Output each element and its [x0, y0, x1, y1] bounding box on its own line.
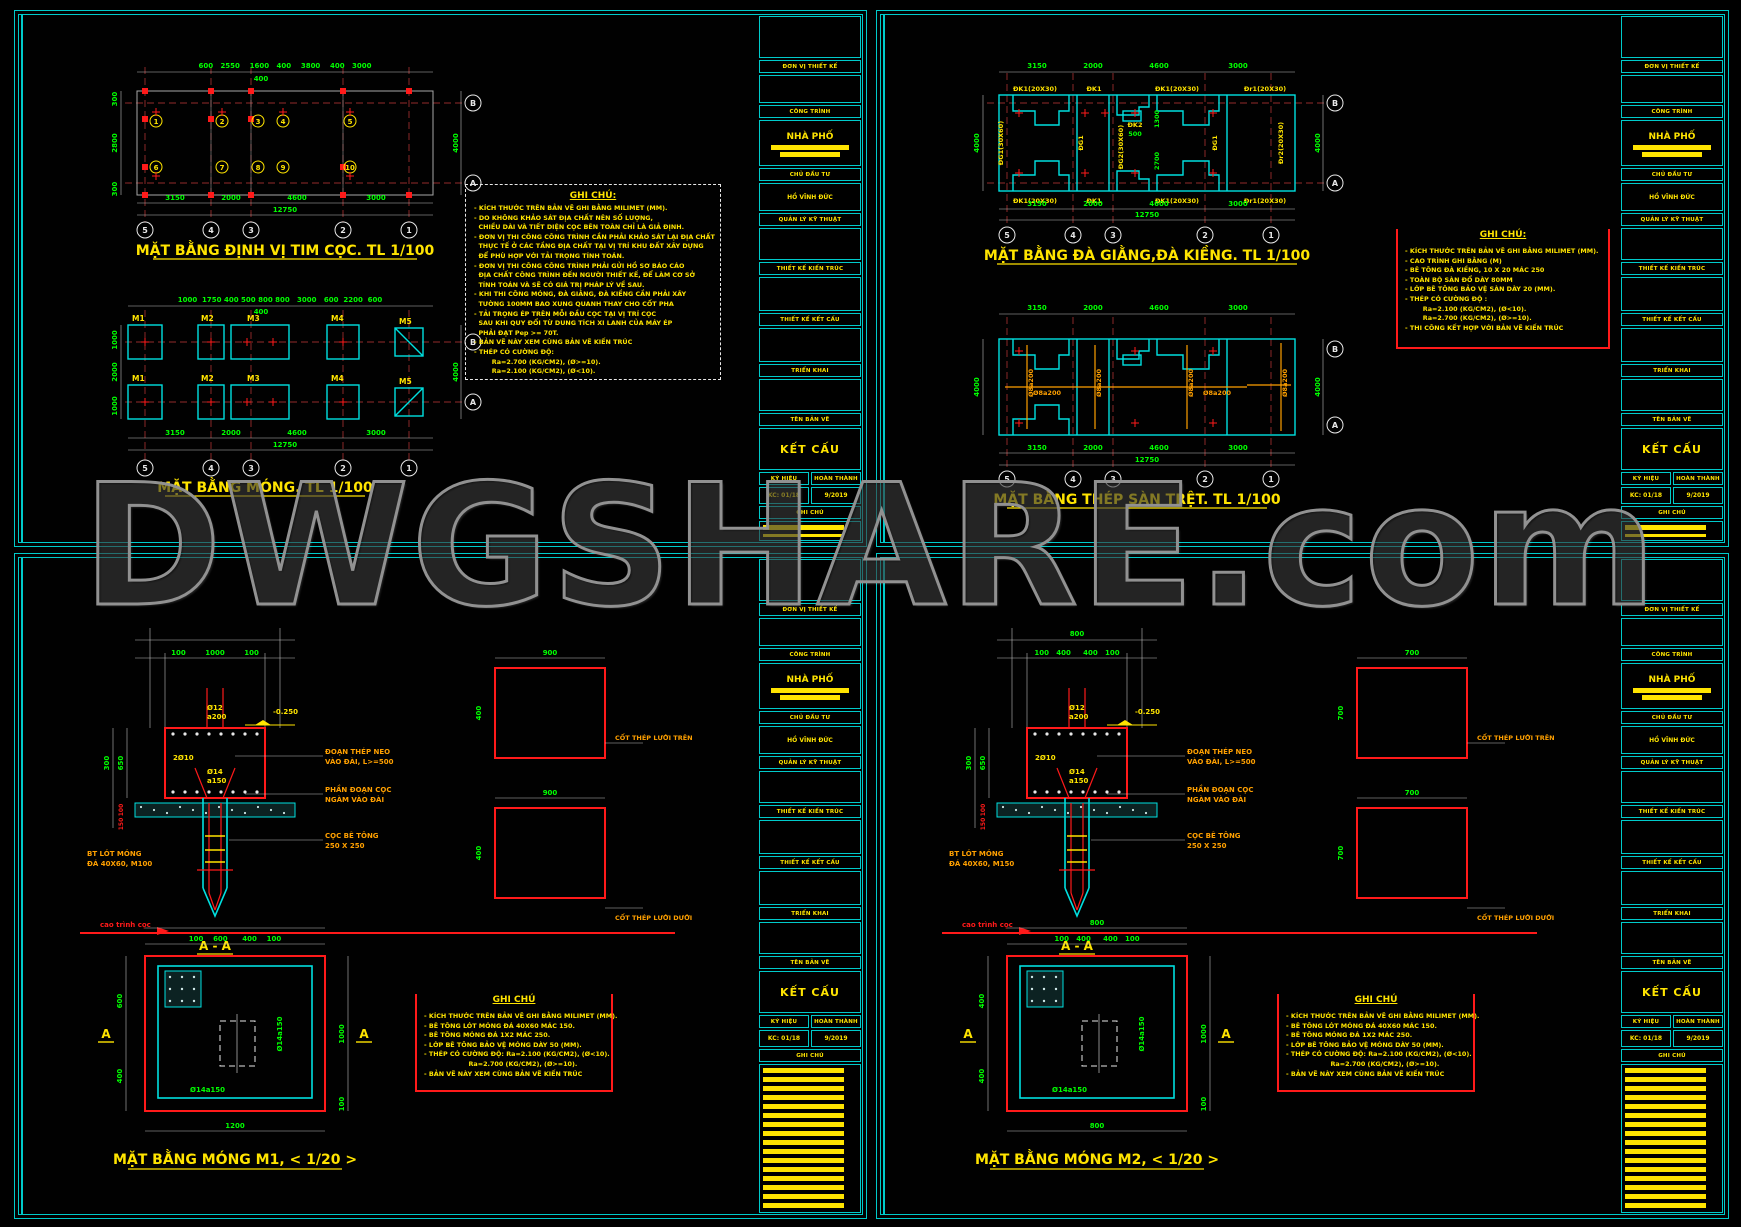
drawing-text: 7	[220, 164, 225, 172]
drawing-shape	[1067, 812, 1069, 814]
drawing-shape	[169, 988, 171, 990]
note-line: THỰC TẾ Ở CÁC TẦNG ĐỊA CHẤT TẠI VỊ TRÍ K…	[474, 242, 712, 252]
note-line: ĐỂ PHÙ HỢP VỚI TẢI TRỌNG TÍNH TOÁN.	[474, 252, 712, 262]
drawing-text: 3150	[1027, 304, 1047, 312]
titleblock-row-header: TRIỂN KHAI	[1621, 907, 1723, 920]
drawing-shape	[248, 192, 254, 198]
drawing-shape	[1117, 732, 1120, 735]
drawing-shape: 31502000 46003000 31502000 46003000 1275…	[973, 304, 1322, 464]
titleblock-row-value	[1621, 379, 1723, 411]
titleblock-row-value: HỒ VĨNH ĐỨC	[1621, 726, 1723, 754]
drawing-shape	[1055, 1000, 1057, 1002]
titleblock-row-header: THIẾT KẾ KIẾN TRÚC	[1621, 262, 1723, 275]
sheet-pile-foundation-plans[interactable]: 12 34 5 67 89 10	[14, 10, 867, 547]
titleblock-note-header: GHI CHÚ	[1621, 506, 1723, 519]
titleblock-row-value: HỒ VĨNH ĐỨC	[1621, 183, 1723, 211]
drawing-text: 100	[118, 804, 125, 817]
title-block: ĐƠN VỊ THIẾT KẾCÔNG TRÌNHNHÀ PHỐCHỦ ĐẦU …	[758, 15, 862, 542]
note-line: - KÍCH THƯỚC TRÊN BẢN VẼ GHI BẰNG MILIME…	[424, 1012, 604, 1022]
drawing-shape	[1093, 790, 1096, 793]
titleblock-designer-box	[759, 75, 861, 103]
drawing-shape	[1027, 728, 1127, 798]
drawing-shape	[1069, 732, 1072, 735]
drawing-text: B	[470, 99, 476, 108]
drawing-shape	[203, 888, 227, 916]
drawing-shape: A A	[963, 1027, 1231, 1041]
titleblock-row-value	[759, 771, 861, 803]
note-line: CHIỀU DÀI VÀ TIẾT DIỆN CỌC BÊN TOÀN CHỈ …	[474, 223, 712, 233]
drawing-text: 4000	[1314, 377, 1322, 397]
drawing-text: Ø14a150	[190, 1086, 225, 1094]
drawing-text: 700	[1337, 706, 1345, 721]
drawing-shape	[1013, 95, 1069, 125]
drawing-shape	[1033, 790, 1036, 793]
titleblock-designer-header: ĐƠN VỊ THIẾT KẾ	[1621, 603, 1723, 616]
drawing-text: a200	[207, 713, 226, 721]
sheet-edge-band	[883, 557, 885, 1215]
titleblock-sign-label: KÝ HIỆU	[759, 472, 809, 485]
beam-plan-title: MẶT BẰNG ĐÀ GIẰNG,ĐÀ KIỀNG. TL 1/100	[984, 245, 1310, 264]
drawing-shape: 100 150	[118, 804, 125, 831]
titleblock-row-value: NHÀ PHỐ	[759, 120, 861, 166]
drawing-text: ĐG2(30X60)	[1117, 125, 1125, 169]
drawing-shape	[231, 790, 234, 793]
titleblock-row-header: CHỦ ĐẦU TƯ	[1621, 168, 1723, 181]
drawing-shape	[183, 732, 186, 735]
drawing-text: 150	[118, 818, 125, 831]
drawing-text: 4000	[973, 377, 981, 397]
drawing-text: 400	[978, 1069, 986, 1084]
titleblock-row-header: CÔNG TRÌNH	[1621, 105, 1723, 118]
drawing-text: 3	[1110, 475, 1116, 484]
titleblock-logo-box	[759, 559, 861, 601]
titleblock-row-value	[1621, 922, 1723, 954]
titleblock-row-value	[1621, 771, 1723, 803]
notes-title: GHI CHÚ	[424, 995, 604, 1005]
titleblock-row-value: HỒ VĨNH ĐỨC	[759, 726, 861, 754]
drawing-text: Ø8a200	[1203, 389, 1231, 397]
drawing-text: ĐOẠN THÉP NEO	[1187, 747, 1252, 756]
drawing-text: 100	[980, 804, 987, 817]
drawing-shape: Ø12 a200 -0.250 2Ø10 Ø14 a150	[1035, 704, 1160, 785]
notes-title: GHI CHÚ:	[1405, 230, 1601, 240]
drawing-text: 2000	[1083, 200, 1103, 208]
drawing-text: PHẦN ĐOẠN CỌC	[1187, 784, 1253, 794]
drawing-text: 2Ø10	[173, 754, 194, 762]
drawing-text: -0.250	[1135, 708, 1160, 716]
drawing-shape	[1080, 806, 1082, 808]
drawing-shape: 54 32 1 BA	[142, 338, 477, 473]
drawing-shape: 500 1300 2700	[1128, 109, 1161, 170]
drawing-shape	[495, 668, 605, 758]
titleblock-designer-header: ĐƠN VỊ THIẾT KẾ	[1621, 60, 1723, 73]
note-line: - THÉP CÓ CƯỜNG ĐỘ: Ra=2.100 (KG/CM2), (…	[424, 1050, 604, 1060]
drawing-shape: Ø12 a200 -0.250 2Ø10 Ø14 a150	[173, 704, 298, 785]
drawing-shape	[340, 192, 346, 198]
note-line: - DO KHÔNG KHẢO SÁT ĐỊA CHẤT NÊN SỐ LƯỢN…	[474, 214, 712, 224]
drawing-text: ĐK1	[1086, 85, 1101, 93]
note-line: - BÊ TÔNG MÓNG ĐÁ 1X2 MÁC 250.	[1286, 1031, 1466, 1041]
drawing-shape	[257, 806, 259, 808]
drawing-text: 100 400 400 100	[1054, 935, 1139, 943]
drawing-shape	[195, 732, 198, 735]
drawing-shape	[243, 790, 246, 793]
drawing-text: VÀO ĐÀI, L>=500	[1187, 757, 1256, 766]
drawing-text: 300	[111, 92, 119, 107]
drawing-shape	[193, 976, 195, 978]
drawing-shape	[1117, 720, 1133, 725]
redacted-text	[780, 695, 840, 700]
mesh-details: 900 400 CỐT THÉP LƯỚI TRÊN 900 400 CỐT T…	[475, 649, 693, 922]
drawing-shape	[999, 95, 1295, 191]
drawing-text: 3000	[1228, 200, 1248, 208]
titleblock-row-header: THIẾT KẾ KIẾN TRÚC	[759, 262, 861, 275]
drawing-shape	[1057, 732, 1060, 735]
drawing-text: 400	[475, 706, 483, 721]
drawing-shape	[999, 95, 1295, 191]
drawing-text: CỐT THÉP LƯỚI TRÊN	[615, 732, 693, 742]
drawing-shape	[137, 95, 481, 238]
titleblock-sign-label: KÝ HIỆU	[759, 1015, 809, 1028]
redacted-note-text	[763, 1068, 844, 1209]
drawing-text: PHẦN ĐOẠN CỌC	[325, 784, 391, 794]
drawing-shape	[142, 116, 148, 122]
titleblock-row-header: TÊN BẢN VẼ	[759, 956, 861, 969]
titleblock-row-header: TÊN BẢN VẼ	[1621, 956, 1723, 969]
drawing-text: 500	[1128, 130, 1142, 138]
drawing-text: A	[1221, 1027, 1231, 1041]
drawing-text: A	[963, 1027, 973, 1041]
sheet-footing-m2-details[interactable]: 800 100 400 400 100 Ø12 a200 -0.250 2Ø10…	[876, 553, 1729, 1219]
titleblock-value-text: HỒ VĨNH ĐỨC	[1649, 194, 1695, 201]
drawing-text: 1000 1750 400 500 800 800 3000 600 2200 …	[178, 296, 383, 304]
drawing-text: 1000	[338, 1024, 346, 1044]
drawing-shape	[270, 809, 272, 811]
note-line: - CAO TRÌNH GHI BẰNG (M)	[1405, 257, 1601, 267]
drawing-shape	[1117, 790, 1120, 793]
drawing-text: 4	[208, 226, 214, 235]
drawing-shape	[208, 192, 214, 198]
drawing-text: Ø8a200	[1187, 369, 1195, 397]
drawing-text: 2	[1202, 231, 1208, 240]
drawing-text: M4	[331, 314, 344, 323]
drawing-text: CỌC BÊ TÔNG	[325, 831, 379, 840]
drawing-text: 6	[154, 164, 159, 172]
drawing-text: 2000	[221, 429, 241, 437]
drawing-text: 3150	[165, 194, 185, 202]
titleblock-row-value: KẾT CẤU	[1621, 971, 1723, 1013]
drawing-shape: 100 150	[980, 804, 987, 831]
drawing-text: CỐT THÉP LƯỚI DƯỚI	[1477, 912, 1554, 922]
drawing-shape	[1054, 809, 1056, 811]
titleblock-row-value	[759, 277, 861, 311]
drawing-text: Ø14a150	[276, 1016, 284, 1051]
drawing-shape	[193, 988, 195, 990]
drawing-text: 4	[208, 464, 214, 473]
drawing-text: 4	[281, 118, 286, 126]
drawing-shape	[205, 836, 225, 862]
drawing-shape	[1041, 806, 1043, 808]
drawing-text: Đr1(20X30)	[1244, 197, 1286, 205]
drawing-text: 10	[345, 164, 355, 172]
drawing-text: 8	[256, 164, 261, 172]
drawing-shape	[181, 988, 183, 990]
titleblock-row-header: TRIỂN KHAI	[759, 907, 861, 920]
drawing-text: 400	[475, 846, 483, 861]
drawing-text: 700	[1405, 789, 1420, 797]
drawing-shape	[1132, 809, 1134, 811]
drawing-shape	[340, 88, 346, 94]
drawing-shape	[1105, 790, 1108, 793]
titleblock-designer-box	[759, 618, 861, 646]
note-line: SAU KHI QUY ĐỔI TỪ DUNG TÍCH XI LANH CỦA…	[474, 319, 712, 329]
titleblock-designer-box	[1621, 618, 1723, 646]
titleblock-row-value: HỒ VĨNH ĐỨC	[759, 183, 861, 211]
drawing-shape	[1157, 339, 1219, 369]
drawing-text: 4600	[1149, 304, 1169, 312]
titleblock-row-header: CHỦ ĐẦU TƯ	[759, 168, 861, 181]
notes-title: GHI CHÚ	[1286, 995, 1466, 1005]
titleblock-row-header: CHỦ ĐẦU TƯ	[759, 711, 861, 724]
titleblock-sign-value: KC: 01/18	[1621, 1030, 1671, 1047]
titleblock-row-value	[759, 228, 861, 260]
drawing-shape	[495, 808, 605, 898]
titleblock-note-box	[759, 1064, 861, 1213]
pile-cap-section: 800 100 400 400 100 Ø12 a200 -0.250 2Ø10…	[942, 628, 1537, 954]
drawing-text: 800	[1090, 919, 1105, 927]
drawing-text: A	[1332, 421, 1339, 430]
drawing-text: 300	[111, 182, 119, 197]
redacted-text	[771, 688, 849, 693]
titleblock-logo-box	[1621, 559, 1723, 601]
drawing-text: 4	[1070, 231, 1076, 240]
drawing-text: 1	[406, 226, 412, 235]
drawing-shape	[211, 91, 343, 195]
drawing-text: 2	[340, 464, 346, 473]
drawing-shape: 300 650	[103, 756, 125, 771]
drawing-shape	[1015, 809, 1017, 811]
drawing-text: 1	[1268, 475, 1274, 484]
titleblock-logo-box	[1621, 16, 1723, 58]
drawing-shape	[137, 91, 433, 195]
drawing-text: 5	[142, 464, 148, 473]
drawing-text: 700	[1337, 846, 1345, 861]
drawing-text: Ø14a150	[1052, 1086, 1087, 1094]
drawing-text: M2	[201, 314, 214, 323]
drawing-text: a150	[207, 777, 226, 785]
note-line: - THÉP CÓ CƯỜNG ĐỘ:	[474, 348, 712, 358]
drawing-text: 700	[1405, 649, 1420, 657]
titleblock-sign-value: KC: 01/18	[1621, 487, 1671, 504]
drawing-shape	[169, 976, 171, 978]
note-line: - BÊ TÔNG LÓT MÓNG ĐÁ 40X60 MÁC 150.	[424, 1022, 604, 1032]
note-line: - BẢN VẼ NÀY XEM CÙNG BẢN VẼ KIẾN TRÚC	[424, 1070, 604, 1080]
drawing-text: 4000	[1314, 133, 1322, 153]
drawing-text: 5	[142, 226, 148, 235]
drawing-text: 2000	[1083, 304, 1103, 312]
titleblock-value-text: KẾT CẤU	[1642, 443, 1702, 456]
drawing-text: -0.250	[273, 708, 298, 716]
drawing-text: 3150	[1027, 200, 1047, 208]
note-line: TƯỜNG 100MM BAO XUNG QUANH THAY CHO CỐT …	[474, 300, 712, 310]
drawing-shape	[183, 790, 186, 793]
drawing-shape	[1067, 836, 1087, 862]
redacted-note-text	[763, 525, 844, 537]
drawing-text: CỌC BÊ TÔNG	[1187, 831, 1241, 840]
drawing-shape	[140, 806, 142, 808]
drawing-text: A	[359, 1027, 369, 1041]
drawing-shape	[1069, 790, 1072, 793]
drawing-text: 300	[965, 756, 973, 771]
titleblock-value-text: KẾT CẤU	[1642, 986, 1702, 999]
titleblock-value-text: HỒ VĨNH ĐỨC	[787, 737, 833, 744]
titleblock-row-value: NHÀ PHỐ	[759, 663, 861, 709]
titleblock-sign-value: KC: 01/18	[759, 487, 809, 504]
note-line: - BÊ TÔNG MÓNG ĐÁ 1X2 MÁC 250.	[424, 1031, 604, 1041]
drawing-text: M1	[132, 314, 145, 323]
drawing-text: 400	[116, 1069, 124, 1084]
drawing-text: 2	[340, 226, 346, 235]
redacted-note-text	[1625, 525, 1706, 537]
drawing-text: cao trình cọc	[962, 921, 1013, 929]
drawing-canvas-q3[interactable]: 100 1000 100 Ø12 a200 -0.250 2Ø10 Ø14 a1…	[25, 558, 755, 1210]
drawing-text: Ø14	[207, 768, 223, 776]
note-line: - BẢN VẼ NÀY XEM CÙNG BẢN VẼ KIẾN TRÚC	[474, 338, 712, 348]
drawing-text: 2000	[221, 194, 241, 202]
drawing-text: a150	[1069, 777, 1088, 785]
drawing-text: ĐK1(20X30)	[1155, 85, 1199, 93]
drawing-text: CỐT THÉP LƯỚI TRÊN	[1477, 732, 1555, 742]
note-line: - THÉP CÓ CƯỜNG ĐỘ: Ra=2.100 (KG/CM2), (…	[1286, 1050, 1466, 1060]
titleblock-row-header: TRIỂN KHAI	[759, 364, 861, 377]
drawing-shape	[231, 809, 233, 811]
drawing-shape	[255, 790, 258, 793]
drawing-shape	[142, 192, 148, 198]
drawing-text: 4600	[287, 429, 307, 437]
note-line: Ra=2.700 (KG/CM2), (Ø>=10).	[474, 358, 712, 368]
drawing-shape	[207, 790, 210, 793]
titleblock-designer-header: ĐƠN VỊ THIẾT KẾ	[759, 60, 861, 73]
drawing-text: NGÀM VÀO ĐÀI	[325, 795, 384, 804]
drawing-text: ĐÁ 40X60, M100	[87, 859, 152, 868]
drawing-shape	[208, 88, 214, 94]
drawing-text: 4600	[287, 194, 307, 202]
sheet-beam-slab-plans[interactable]: ĐK1(20X30) ĐK1 ĐK1(20X30) Đr1(20X30) ĐK1…	[876, 10, 1729, 547]
drawing-text: 400	[254, 308, 269, 316]
footing-plan-title: MẶT BẰNG MÓNG M2, < 1/20 >	[975, 1149, 1219, 1168]
drawing-shape	[171, 732, 174, 735]
drawing-text: 1000	[111, 330, 119, 350]
drawing-shape	[169, 1000, 171, 1002]
note-line: Ra=2.700 (KG/CM2), (Ø>=10).	[1286, 1060, 1466, 1070]
drawing-text: Đr2(20X30)	[1277, 122, 1285, 164]
titleblock-date-label: HOÀN THÀNH	[811, 472, 861, 485]
plan1-title: MẶT BẰNG ĐỊNH VỊ TIM CỌC. TL 1/100	[136, 240, 435, 259]
drawing-text: 3150	[1027, 444, 1047, 452]
note-line: - LỚP BÊ TÔNG BẢO VỆ MÓNG DÀY 50 (MM).	[1286, 1041, 1466, 1051]
titleblock-logo-box	[759, 16, 861, 58]
drawing-shape	[1357, 668, 1467, 758]
drawing-shape	[208, 116, 214, 122]
titleblock-row-header: QUẢN LÝ KỸ THUẬT	[1621, 756, 1723, 769]
titleblock-row-header: THIẾT KẾ KẾT CẤU	[1621, 313, 1723, 326]
general-notes-q3: GHI CHÚ- KÍCH THƯỚC TRÊN BẢN VẼ GHI BẰNG…	[415, 994, 613, 1092]
titleblock-sign-label: KÝ HIỆU	[1621, 472, 1671, 485]
redacted-note-text	[1625, 1068, 1706, 1209]
drawing-text: 9	[281, 164, 286, 172]
drawing-text: 4000	[452, 362, 460, 382]
titleblock-row-value	[759, 922, 861, 954]
titleblock-value-text: HỒ VĨNH ĐỨC	[1649, 737, 1695, 744]
drawing-shape	[1043, 988, 1045, 990]
sheet-footing-m1-details[interactable]: 100 1000 100 Ø12 a200 -0.250 2Ø10 Ø14 a1…	[14, 553, 867, 1219]
drawing-shape	[1002, 806, 1004, 808]
drawing-text: 3000	[1228, 444, 1248, 452]
titleblock-note-box	[759, 521, 861, 541]
note-line: - TẢI TRỌNG ÉP TRÊN MỖI ĐẦU CỌC TẠI VỊ T…	[474, 310, 712, 320]
drawing-text: 3150	[165, 429, 185, 437]
titleblock-row-value: KẾT CẤU	[759, 428, 861, 470]
drawing-shape	[1157, 95, 1219, 125]
note-line: - BÊ TÔNG ĐÀ KIỀNG, 10 X 20 MÁC 250	[1405, 266, 1601, 276]
drawing-text: 3	[248, 464, 254, 473]
drawing-text: 800	[1090, 1122, 1105, 1130]
titleblock-row-value	[1621, 871, 1723, 905]
title-block: ĐƠN VỊ THIẾT KẾCÔNG TRÌNHNHÀ PHỐCHỦ ĐẦU …	[758, 558, 862, 1214]
drawing-text: M3	[247, 374, 260, 383]
drawing-text: 4600	[1149, 62, 1169, 70]
drawing-text: Ø8a200	[1033, 389, 1061, 397]
plan2-title: MẶT BẰNG MÓNG. TL 1/100	[157, 477, 373, 496]
note-line: TÍNH TOÁN VÀ SẼ CÓ GIÁ TRỊ PHÁP LÝ VỀ SA…	[474, 281, 712, 291]
drawing-text: 3	[248, 226, 254, 235]
note-line: - KÍCH THƯỚC TRÊN BẢN VẼ GHI BẰNG MILIME…	[1405, 247, 1601, 257]
drawing-shape	[141, 338, 347, 406]
drawing-shape	[137, 334, 481, 476]
general-notes-q2: GHI CHÚ:- KÍCH THƯỚC TRÊN BẢN VẼ GHI BẰN…	[1396, 229, 1610, 349]
drawing-text: 2000	[1083, 444, 1103, 452]
titleblock-note-box	[1621, 521, 1723, 541]
titleblock-row-header: QUẢN LÝ KỸ THUẬT	[759, 213, 861, 226]
drawing-shape	[1043, 1000, 1045, 1002]
drawing-text: A	[101, 1027, 111, 1041]
titleblock-date-value: 9/2019	[811, 487, 861, 504]
drawing-text: 2000	[1083, 62, 1103, 70]
cad-canvas[interactable]: { "watermark": "DWGSHARE.com", "colors":…	[0, 0, 1741, 1227]
drawing-text: ĐG1	[1211, 135, 1219, 151]
drawing-text: Ø14a150	[1138, 1016, 1146, 1051]
drawing-text: BT LÓT MÓNG	[87, 849, 142, 858]
drawing-text: 650	[979, 756, 987, 771]
drawing-shape	[1357, 808, 1467, 898]
drawing-shape	[1117, 171, 1149, 191]
drawing-text: 2Ø10	[1035, 754, 1056, 762]
titleblock-value-text: NHÀ PHỐ	[1649, 132, 1696, 142]
titleblock-row-header: QUẢN LÝ KỸ THUẬT	[1621, 213, 1723, 226]
drawing-shape	[1106, 812, 1108, 814]
drawing-text: 3000	[1228, 62, 1248, 70]
drawing-text: BT LÓT MÓNG	[949, 849, 1004, 858]
drawing-shape	[1013, 161, 1069, 191]
drawing-shape	[179, 806, 181, 808]
footing-plan-title: MẶT BẰNG MÓNG M1, < 1/20 >	[113, 1149, 357, 1168]
drawing-text: B	[1332, 99, 1338, 108]
drawing-shape	[153, 809, 155, 811]
drawing-canvas-q4[interactable]: 800 100 400 400 100 Ø12 a200 -0.250 2Ø10…	[887, 558, 1617, 1210]
drawing-shape	[244, 812, 246, 814]
note-line: Ra=2.100 (KG/CM2), (Ø<10).	[474, 367, 712, 377]
note-line: - THI CÔNG KẾT HỢP VỚI BẢN VẼ KIẾN TRÚC	[1405, 324, 1601, 334]
